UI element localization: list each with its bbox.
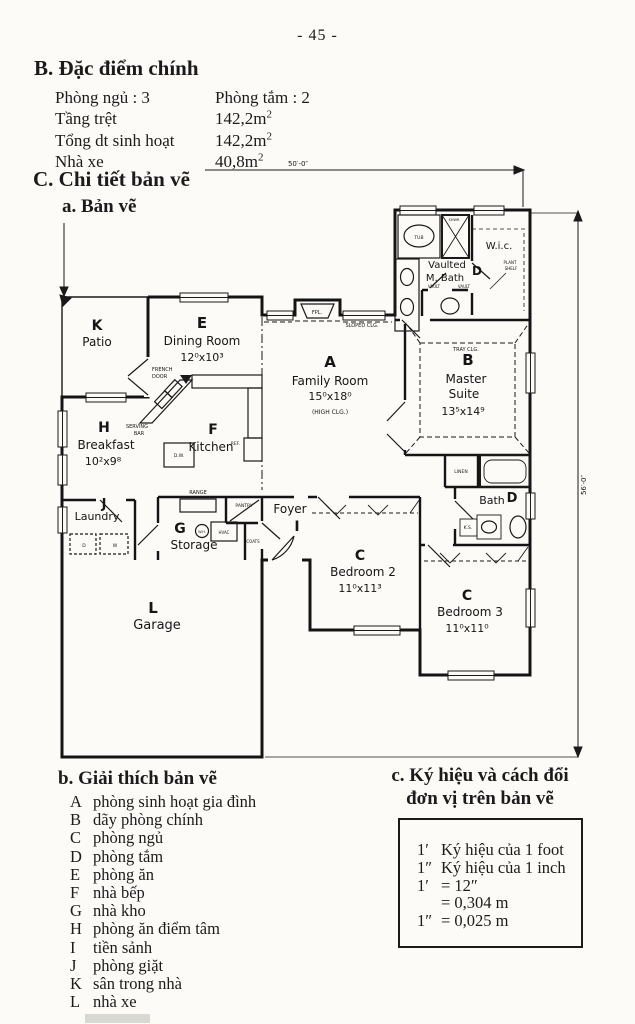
- plan-label: REF.: [231, 441, 240, 447]
- legend-item: Cphòng ngủ: [70, 829, 256, 847]
- plan-label: Breakfast: [77, 438, 134, 452]
- conversion-row: 1′= 12″: [417, 877, 581, 895]
- legend-item: Lnhà xe: [70, 993, 256, 1011]
- legend-item: Hphòng ăn điểm tâm: [70, 920, 256, 938]
- plan-label: TUB: [413, 235, 423, 241]
- legend-list: Aphòng sinh hoạt gia đìnhBdãy phòng chín…: [70, 793, 256, 1011]
- plan-label: C: [462, 588, 472, 604]
- legend-item: Ephòng ăn: [70, 866, 256, 884]
- refrigerator: [244, 438, 262, 461]
- legend-item: Fnhà bếp: [70, 884, 256, 902]
- plant-shelf-leader: [490, 273, 506, 289]
- plan-label: RANGE: [189, 490, 206, 496]
- master-toilet: [441, 298, 459, 314]
- legend-item: Bdãy phòng chính: [70, 811, 256, 829]
- bath-sink-counter: [477, 515, 501, 539]
- plan-label: PLANT: [504, 260, 517, 265]
- plan-label: Bedroom 2: [330, 565, 396, 579]
- legend-item: Ksân trong nhà: [70, 975, 256, 993]
- plan-label: VAULT: [458, 284, 471, 289]
- conversion-box: 1′Ký hiệu của 1 foot1″Ký hiệu của 1 inch…: [398, 818, 583, 948]
- plan-label: 50′-0″: [288, 160, 308, 168]
- plan-label: BAR: [134, 431, 145, 437]
- plan-label: K.S.: [464, 525, 473, 531]
- kitchen-counter: [192, 375, 262, 388]
- dimension-lines: [60, 166, 582, 757]
- plan-label: Laundry: [75, 510, 120, 523]
- conversion-row: 1″= 0,025 m: [417, 912, 581, 930]
- plan-labels: 50′-0″56′-0″KPatioEDining Room12⁰x10³FRE…: [75, 160, 588, 635]
- bath-tub: [484, 460, 526, 483]
- plan-label: 15⁰x18⁰: [308, 390, 352, 403]
- kitchen-sink: [155, 391, 173, 409]
- plan-label: F: [208, 422, 218, 438]
- plan-label: DOOR: [152, 374, 168, 380]
- plan-label: W.H.: [198, 530, 206, 534]
- plan-label: A: [324, 353, 336, 371]
- plan-label: D: [82, 543, 86, 549]
- plan-label: Dining Room: [164, 334, 241, 348]
- plan-label: Family Room: [292, 374, 369, 388]
- plan-label: 10²x9⁸: [85, 455, 122, 468]
- legend-item: Aphòng sinh hoạt gia đình: [70, 793, 256, 811]
- scan-artifact: [85, 1014, 150, 1023]
- plan-label: VAULT: [428, 284, 441, 289]
- plan-label: 56′-0″: [580, 475, 588, 495]
- plan-label: M. Bath: [426, 273, 464, 284]
- bath-toilet: [510, 516, 526, 538]
- plan-label: B: [462, 351, 473, 369]
- plan-label: 12⁰x10³: [180, 351, 223, 364]
- page-number: - 45 -: [0, 27, 635, 45]
- subsection-c-heading: c. Ký hiệu và cách đổi đơn vị trên bản v…: [372, 764, 588, 810]
- plan-label: I: [294, 519, 299, 535]
- plan-label: H: [98, 420, 110, 436]
- plan-label: W: [113, 543, 118, 549]
- legend-item: Jphòng giặt: [70, 957, 256, 975]
- plan-label: C: [355, 548, 365, 564]
- ceiling-lines: [262, 317, 529, 490]
- subsection-c-line2: đơn vị trên bản vẽ: [372, 787, 588, 810]
- plan-label: HVAC: [219, 530, 230, 535]
- plan-label: Garage: [133, 618, 181, 633]
- plan-label: W.i.c.: [486, 241, 513, 252]
- subsection-b-heading: b. Giải thích bản vẽ: [58, 768, 217, 790]
- plan-label: Master: [446, 372, 487, 386]
- conversion-row: = 0,304 m: [417, 894, 581, 912]
- plan-label: PANTRY: [235, 503, 252, 509]
- bath-sink: [482, 521, 497, 533]
- plan-label: COATS: [246, 539, 260, 544]
- plan-label: SHWR: [449, 218, 460, 222]
- floor-plan-svg: 50′-0″56′-0″KPatioEDining Room12⁰x10³FRE…: [40, 155, 595, 770]
- plan-label: Bath: [479, 494, 505, 507]
- plan-label: 13⁵x14⁹: [441, 405, 484, 418]
- scanned-page: - 45 - B. Đặc điểm chính Phòng ngủ : 3Ph…: [0, 0, 635, 1024]
- plan-label: Suite: [449, 387, 480, 401]
- plan-label: Bedroom 3: [437, 605, 503, 619]
- section-b-heading: B. Đặc điểm chính: [34, 56, 199, 81]
- plan-label: Kitchen: [188, 440, 233, 454]
- plan-label: Foyer: [273, 502, 306, 516]
- plan-label: FRENCH: [152, 367, 173, 373]
- legend-item: Gnhà kho: [70, 902, 256, 920]
- conversion-row: 1′Ký hiệu của 1 foot: [417, 841, 581, 859]
- plan-label: 11⁰x11³: [338, 582, 381, 595]
- subsection-c-line1: c. Ký hiệu và cách đổi: [372, 764, 588, 787]
- plan-label: Patio: [82, 335, 111, 349]
- plan-label: SHELF: [505, 266, 518, 271]
- spec-row: Tầng trệt142,2m2: [55, 107, 385, 128]
- legend-item: Dphòng tắm: [70, 848, 256, 866]
- plan-label: (HIGH CLG.): [312, 409, 348, 416]
- plan-label: Storage: [171, 538, 218, 552]
- plan-label: D.W.: [174, 453, 184, 459]
- plan-label: FPL.: [312, 310, 323, 316]
- plan-label: SERVING: [126, 424, 148, 430]
- plan-label: Vaulted: [428, 260, 466, 271]
- plan-label: G: [174, 521, 186, 537]
- plan-label: D: [507, 491, 518, 506]
- plan-label: SLOPED CLG.: [345, 323, 378, 329]
- spec-row: Tổng dt sinh hoạt142,2m2: [55, 128, 385, 149]
- plan-label: E: [197, 314, 207, 332]
- conversion-row: 1″Ký hiệu của 1 inch: [417, 859, 581, 877]
- plan-label: K: [92, 318, 104, 334]
- plan-label: LINEN: [454, 469, 467, 475]
- legend-item: Itiền sảnh: [70, 939, 256, 957]
- plan-label: D: [472, 264, 482, 278]
- range: [180, 499, 216, 512]
- spec-row: Phòng ngủ : 3Phòng tắm : 2: [55, 90, 385, 107]
- plan-label: 11⁰x11⁰: [445, 622, 489, 635]
- plan-label: L: [148, 599, 158, 617]
- floor-plan: 50′-0″56′-0″KPatioEDining Room12⁰x10³FRE…: [40, 155, 595, 770]
